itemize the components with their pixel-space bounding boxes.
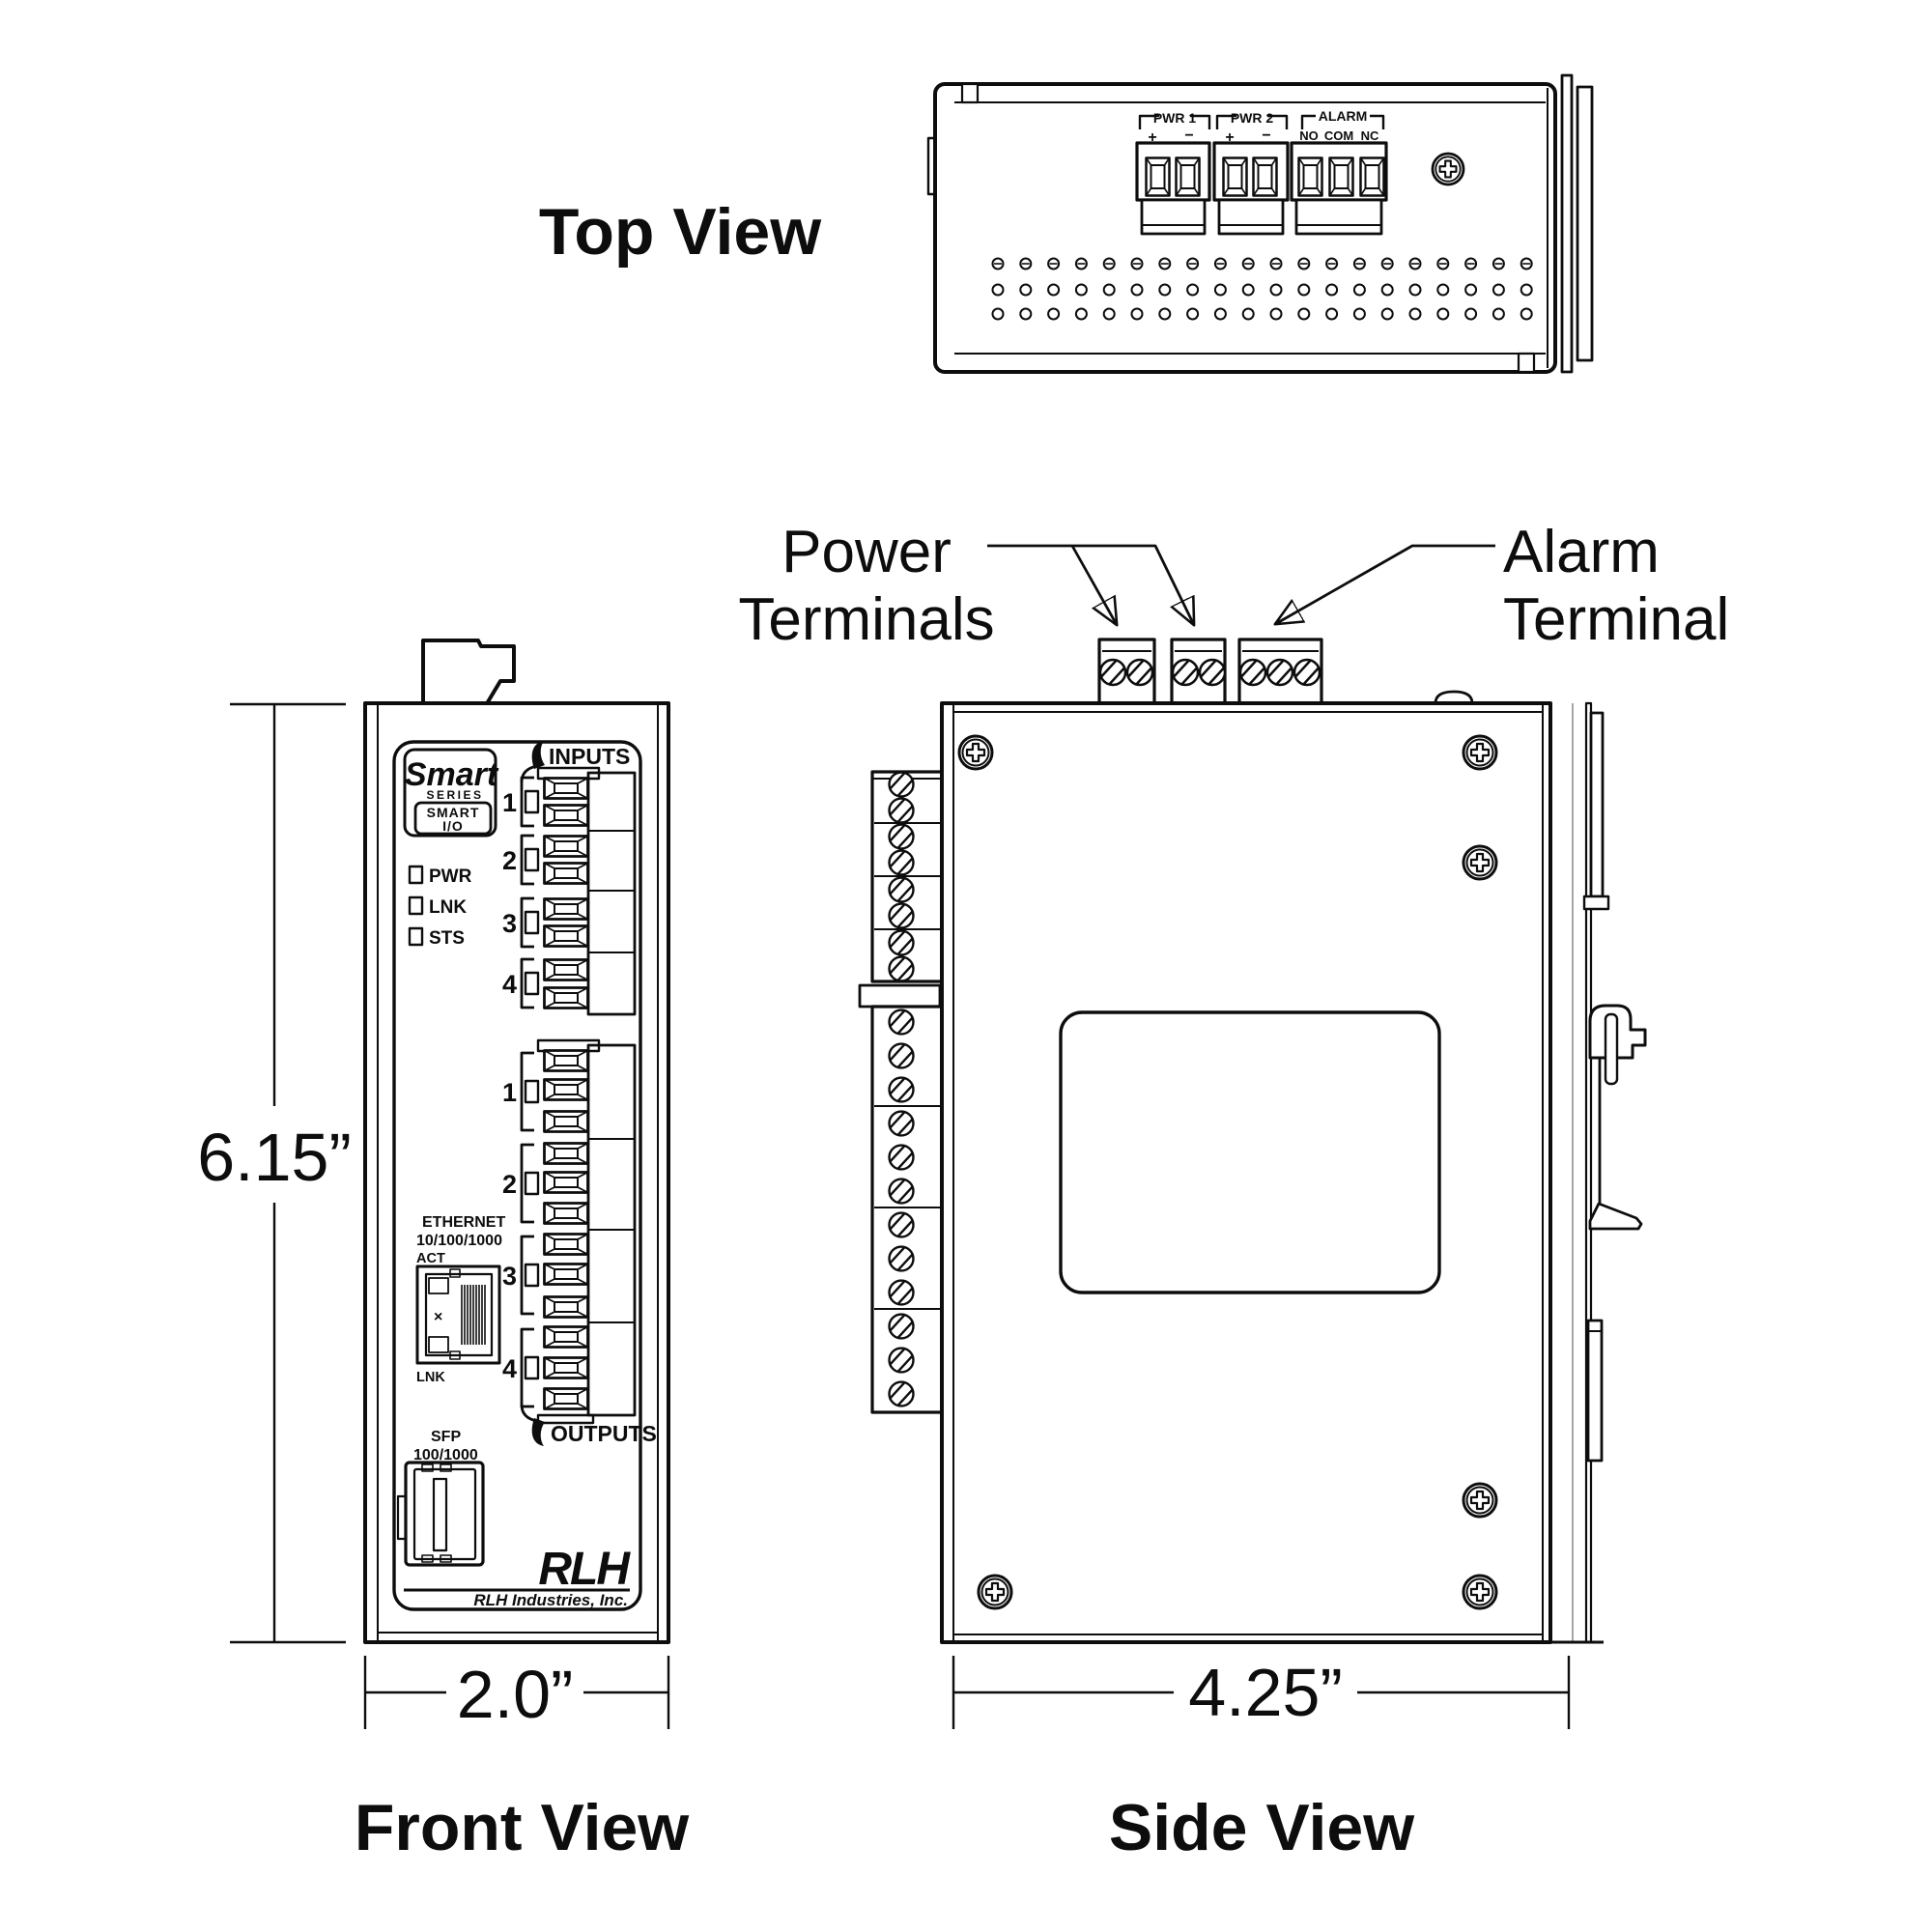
dimension-side-width: 4.25” xyxy=(953,1655,1569,1730)
input-terminal-screw xyxy=(545,988,588,1009)
vent-hole xyxy=(1298,309,1309,320)
alarm-callout-line2: Terminal xyxy=(1503,586,1729,653)
top-view-title: Top View xyxy=(539,195,822,269)
vent-hole xyxy=(1104,285,1115,296)
callout-alarm-terminal: Alarm Terminal xyxy=(1277,519,1729,653)
din-bracket-lower-bar xyxy=(1588,1321,1602,1461)
vent-hole xyxy=(1437,285,1448,296)
front-width-value: 2.0” xyxy=(457,1657,574,1732)
vent-hole xyxy=(1271,285,1282,296)
vent-hole xyxy=(1271,309,1282,320)
input-channel-number: 4 xyxy=(502,970,517,999)
top-view-terminal-screws xyxy=(1147,158,1384,196)
side-view-output-terminal-column xyxy=(872,1007,942,1412)
alarm-leader-line xyxy=(1277,546,1495,623)
top-terminal-screw xyxy=(1147,158,1170,196)
output-terminal-screw xyxy=(545,1112,588,1132)
alarm-no: NO xyxy=(1299,128,1319,143)
vent-hole xyxy=(1243,285,1254,296)
vent-hole xyxy=(1326,309,1337,320)
vent-hole xyxy=(1521,285,1532,296)
pwr2-plus: + xyxy=(1225,129,1234,146)
vent-hole xyxy=(1493,309,1504,320)
vent-hole xyxy=(1465,285,1476,296)
output-terminal-screw xyxy=(545,1144,588,1164)
output-terminal-screw xyxy=(545,1080,588,1100)
phillips-screw xyxy=(1463,1576,1496,1608)
top-view-notch-topleft xyxy=(962,84,978,102)
vent-hole xyxy=(1076,285,1087,296)
pwr2-minus: − xyxy=(1262,128,1270,144)
alarm-com: COM xyxy=(1324,128,1353,143)
top-view-notch-bottomright xyxy=(1519,354,1534,372)
output-terminal-screw xyxy=(545,1173,588,1193)
input-terminal-screw xyxy=(545,926,588,947)
phillips-screw xyxy=(1463,736,1496,769)
vent-hole xyxy=(1159,309,1170,320)
vent-hole xyxy=(1132,285,1143,296)
vent-hole xyxy=(1410,285,1421,296)
vent-hole xyxy=(1298,285,1309,296)
rlh-logo: RLH xyxy=(538,1544,631,1595)
side-view-product-label xyxy=(1061,1012,1439,1293)
input-terminal-screw xyxy=(545,806,588,826)
inputs-label: INPUTS xyxy=(549,744,630,769)
callout-power-terminals: Power Terminals xyxy=(738,519,1193,653)
brand-model-line2: I/O xyxy=(442,818,464,834)
top-view: PWR 1 + − PWR 2 + − ALARM NO COM NC xyxy=(928,75,1592,372)
ethernet-lnk-label: LNK xyxy=(416,1370,445,1385)
pwr1-plus: + xyxy=(1148,129,1156,146)
vent-hole xyxy=(1104,309,1115,320)
top-terminal-screw xyxy=(1299,158,1322,196)
side-view-title: Side View xyxy=(1109,1791,1415,1864)
company-name: RLH Industries, Inc. xyxy=(473,1591,628,1609)
side-view-left-tab xyxy=(860,985,940,1007)
input-channel-number: 1 xyxy=(502,788,517,817)
height-dimension-value: 6.15” xyxy=(197,1120,352,1195)
output-channel-number: 1 xyxy=(502,1078,517,1107)
output-terminal-screw xyxy=(545,1358,588,1378)
ethernet-label-line1: ETHERNET xyxy=(422,1214,505,1231)
vent-hole xyxy=(1048,309,1059,320)
dimensional-drawing-page: PWR 1 + − PWR 2 + − ALARM NO COM NC xyxy=(0,0,1932,1932)
phillips-screw xyxy=(959,736,992,769)
alarm-callout-line1: Alarm xyxy=(1503,519,1660,585)
vent-hole xyxy=(1215,309,1226,320)
vent-hole xyxy=(1076,309,1087,320)
phillips-screw xyxy=(1463,846,1496,879)
power-leader-line-2 xyxy=(1072,546,1116,623)
front-view: Smart SERIES SMART I/O PWR LNK STS INPUT… xyxy=(365,640,668,1642)
phillips-screw xyxy=(1433,154,1463,185)
outputs-label: OUTPUTS xyxy=(551,1421,657,1446)
vent-hole xyxy=(993,309,1004,320)
alarm-nc: NC xyxy=(1361,128,1379,143)
top-terminal-screw xyxy=(1224,158,1247,196)
vent-hole xyxy=(1382,285,1393,296)
power-leader-line-1 xyxy=(987,546,1193,623)
input-terminal-screw xyxy=(545,779,588,799)
vent-hole xyxy=(1382,309,1393,320)
power-callout-line2: Terminals xyxy=(738,586,994,653)
pwr1-label: PWR 1 xyxy=(1153,110,1197,126)
side-view-top-terminals xyxy=(1097,639,1322,703)
input-channel-number: 3 xyxy=(502,909,517,938)
vent-hole xyxy=(1326,285,1337,296)
ethernet-label-line2: 10/100/1000 xyxy=(416,1233,502,1249)
alarm-label: ALARM xyxy=(1319,108,1368,124)
top-terminal-screw xyxy=(1254,158,1277,196)
pwr1-minus: − xyxy=(1184,128,1193,144)
top-terminal-screw xyxy=(1330,158,1353,196)
vent-hole xyxy=(1187,285,1198,296)
rj45-x-mark: × xyxy=(434,1309,442,1325)
output-channel-number: 2 xyxy=(502,1170,517,1199)
front-view-din-tab xyxy=(423,640,514,705)
power-callout-line1: Power xyxy=(781,519,952,585)
din-hook-slot xyxy=(1605,1014,1617,1084)
phillips-screw xyxy=(979,1576,1011,1608)
output-terminal-screw xyxy=(545,1327,588,1348)
drawing-canvas: PWR 1 + − PWR 2 + − ALARM NO COM NC xyxy=(0,0,1932,1932)
input-terminal-screw xyxy=(545,864,588,884)
rj45-pins xyxy=(462,1285,485,1345)
top-terminal-screw xyxy=(1177,158,1200,196)
input-terminal-screw xyxy=(545,960,588,980)
side-width-value: 4.25” xyxy=(1188,1655,1343,1730)
lnk-led-label: LNK xyxy=(429,897,467,918)
vent-hole xyxy=(1437,309,1448,320)
vent-hole xyxy=(1020,285,1031,296)
output-terminal-screw xyxy=(545,1051,588,1071)
vent-hole xyxy=(1521,309,1532,320)
sfp-label-line1: SFP xyxy=(431,1429,461,1445)
vent-hole xyxy=(1354,309,1365,320)
input-terminal-screw xyxy=(545,837,588,857)
vent-hole xyxy=(1243,309,1254,320)
vent-hole xyxy=(1410,309,1421,320)
front-view-title: Front View xyxy=(355,1791,690,1864)
dimension-height: 6.15” xyxy=(197,704,352,1642)
pwr-led-label: PWR xyxy=(429,867,472,887)
output-channel-number: 3 xyxy=(502,1262,517,1291)
front-view-body xyxy=(365,703,668,1642)
input-channel-number: 2 xyxy=(502,846,517,875)
ethernet-act-label: ACT xyxy=(416,1251,445,1266)
output-terminal-screw xyxy=(545,1389,588,1409)
phillips-screw xyxy=(1463,1484,1496,1517)
vent-hole xyxy=(1187,309,1198,320)
output-terminal-screw xyxy=(545,1235,588,1255)
vent-hole xyxy=(1465,309,1476,320)
top-view-din-plate-bar-1 xyxy=(1562,75,1572,372)
side-view xyxy=(860,154,1645,1642)
dimension-front-width: 2.0” xyxy=(365,1656,668,1732)
din-release-latch xyxy=(1590,1204,1641,1229)
output-terminal-screw xyxy=(545,1264,588,1285)
top-terminal-screw xyxy=(1361,158,1384,196)
din-bracket-upper-bar xyxy=(1591,713,1603,896)
vent-hole xyxy=(1354,285,1365,296)
sts-led-label: STS xyxy=(429,928,465,949)
vent-hole xyxy=(1048,285,1059,296)
top-view-din-plate-bar-2 xyxy=(1577,87,1592,360)
vent-hole xyxy=(1132,309,1143,320)
pwr2-label: PWR 2 xyxy=(1231,110,1274,126)
input-terminal-screw xyxy=(545,899,588,920)
vent-hole xyxy=(1215,285,1226,296)
output-channel-number: 4 xyxy=(502,1354,517,1383)
output-terminal-screw xyxy=(545,1297,588,1318)
vent-hole xyxy=(993,285,1004,296)
vent-hole xyxy=(1493,285,1504,296)
vent-hole xyxy=(1020,309,1031,320)
brand-series: SERIES xyxy=(426,788,483,802)
output-terminal-screw xyxy=(545,1204,588,1224)
din-bracket-upper-foot xyxy=(1584,896,1608,909)
vent-hole xyxy=(1159,285,1170,296)
side-view-input-terminal-column xyxy=(872,771,942,983)
